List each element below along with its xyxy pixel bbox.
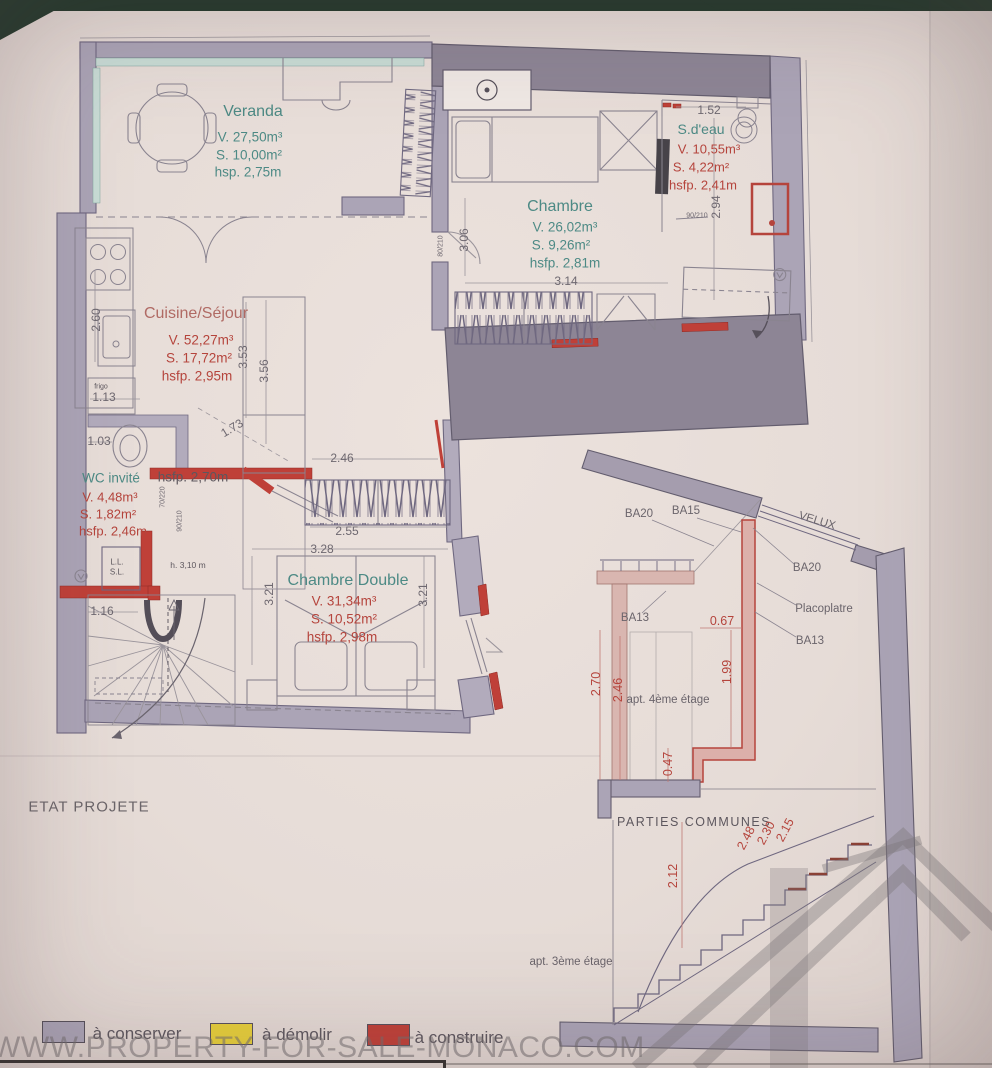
- veranda-furniture: [128, 58, 436, 197]
- section-label-apt3: apt. 3ème étage: [529, 956, 612, 968]
- section-label-ba13-right: BA13: [796, 635, 824, 647]
- veranda-surface: S. 10,00m²: [216, 148, 282, 163]
- dim-3-28: 3.28: [310, 542, 333, 556]
- dim-2-60: 2.60: [89, 308, 103, 331]
- door-size-90-210-b: 90/210: [177, 510, 184, 531]
- door-size-70-220: 70/220: [160, 486, 167, 507]
- cuisine-volume: V. 52,27m³: [169, 333, 234, 348]
- section-label-ba13-left: BA13: [621, 612, 649, 624]
- chambre-double-surface: S. 10,52m²: [311, 612, 377, 627]
- room-label-sdeau: S.d'eau: [677, 121, 724, 137]
- dim-3-21-left: 3.21: [262, 582, 276, 605]
- website-watermark: WWW.PROPERTY-FOR-SALE-MONACO.COM: [0, 1031, 645, 1065]
- paper-crease-horizontal: [0, 755, 600, 757]
- dim-2-94: 2.94: [709, 195, 723, 218]
- plan-title: ETAT PROJETE: [28, 799, 149, 816]
- room-label-cuisine: Cuisine/Séjour: [144, 305, 248, 323]
- chambre-double-volume: V. 31,34m³: [312, 594, 377, 609]
- paper-shadow-right: [931, 0, 992, 1068]
- room-label-wc: WC invité: [82, 471, 140, 486]
- sdeau-surface: S. 4,22m²: [673, 160, 729, 175]
- dim-3-53: 3.53: [236, 345, 250, 368]
- room-label-veranda: Veranda: [223, 103, 283, 121]
- section-dim-0-47: 0.47: [661, 752, 675, 776]
- stair-height-note: h. 3,10 m: [170, 560, 205, 570]
- veranda-height: hsp. 2,75m: [215, 165, 282, 180]
- section-label-ba15: BA15: [672, 505, 700, 517]
- section-dim-2-12: 2.12: [666, 864, 680, 888]
- section-label-ba20-top: BA20: [625, 508, 653, 520]
- section-label-apt4: apt. 4ème étage: [626, 694, 709, 706]
- wc-surface: S. 1,82m²: [80, 507, 136, 522]
- room-label-chambre: Chambre: [527, 198, 593, 216]
- section-dim-2-46: 2.46: [611, 678, 625, 702]
- dim-3-56: 3.56: [257, 359, 271, 382]
- chambre-double-height: hsfp. 2,98m: [307, 630, 378, 645]
- chambre-volume: V. 26,02m³: [533, 220, 598, 235]
- dim-3-06: 3.06: [457, 228, 471, 251]
- dim-2-55: 2.55: [335, 524, 358, 538]
- dryer-label: S.L.: [110, 568, 124, 577]
- hall-height: hsfp. 2,70m: [158, 470, 229, 485]
- wc-height: hsfp. 2,46m: [79, 524, 147, 539]
- veranda-volume: V. 27,50m³: [218, 130, 283, 145]
- cuisine-height: hsfp. 2,95m: [162, 369, 233, 384]
- cuisine-surface: S. 17,72m²: [166, 351, 232, 366]
- door-size-90-210-a: 90/210: [686, 213, 707, 220]
- dim-3-21-right: 3.21: [416, 583, 430, 606]
- sdeau-height: hsfp. 2,41m: [669, 178, 737, 193]
- washer-label: L.L.: [110, 558, 123, 567]
- floorplan-linework: [0, 0, 992, 1068]
- section-dim-2-70: 2.70: [589, 672, 603, 696]
- wc-volume: V. 4,48m³: [82, 490, 137, 505]
- dim-2-46: 2.46: [330, 451, 353, 465]
- section-label-ba20-right: BA20: [793, 562, 821, 574]
- section-dim-1-99: 1.99: [720, 660, 734, 684]
- sdeau-volume: V. 10,55m³: [678, 142, 740, 157]
- door-size-80-210: 80/210: [438, 235, 445, 256]
- dim-1-52: 1.52: [697, 103, 720, 117]
- room-label-chambre-double: Chambre Double: [288, 572, 409, 590]
- dim-1-16: 1.16: [90, 604, 113, 618]
- section-dim-0-67: 0.67: [710, 614, 734, 628]
- chambre-height: hsfp. 2,81m: [530, 256, 601, 271]
- chambre-surface: S. 9,26m²: [532, 238, 591, 253]
- dim-3-14: 3.14: [554, 274, 577, 288]
- dim-1-03: 1.03: [87, 434, 110, 448]
- section-label-placoplatre: Placoplatre: [795, 603, 853, 615]
- dim-1-13: 1.13: [92, 390, 115, 404]
- floor-plan-photo: Veranda V. 27,50m³ S. 10,00m² hsp. 2,75m…: [0, 0, 992, 1068]
